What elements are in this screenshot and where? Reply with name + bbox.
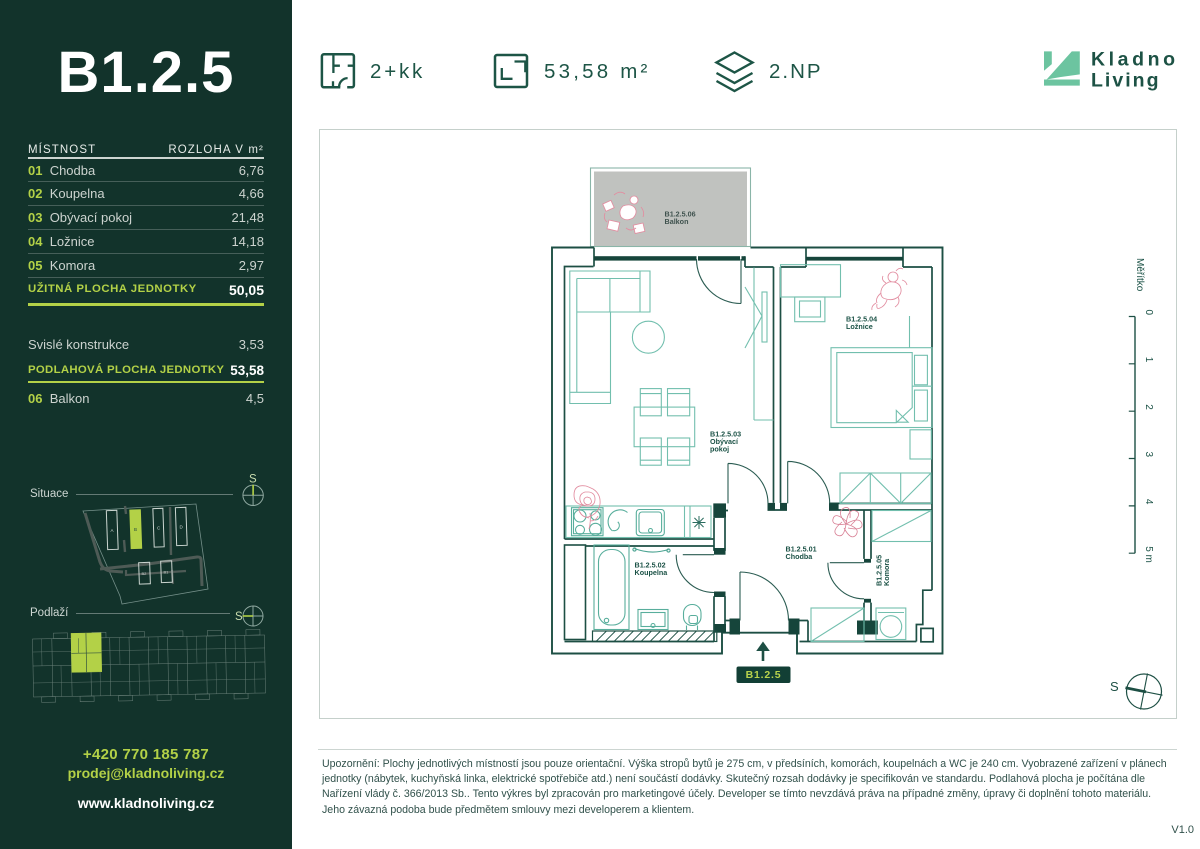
svg-text:5 m: 5 m [1143, 546, 1154, 563]
svg-text:Ložnice: Ložnice [846, 322, 873, 331]
svg-text:4: 4 [1143, 499, 1154, 505]
svg-text:Měřítko: Měřítko [1134, 258, 1145, 292]
svg-text:1: 1 [1143, 357, 1154, 363]
svg-text:2: 2 [1143, 404, 1154, 410]
svg-text:S: S [1110, 679, 1119, 694]
svg-text:Balkon: Balkon [665, 217, 689, 226]
svg-text:Koupelna: Koupelna [635, 568, 669, 577]
svg-text:0: 0 [1143, 310, 1154, 316]
svg-text:3: 3 [1143, 452, 1154, 458]
svg-text:Chodba: Chodba [786, 552, 814, 561]
svg-text:B1.2.5: B1.2.5 [746, 669, 782, 681]
svg-text:pokoj: pokoj [710, 444, 729, 453]
svg-text:Komora: Komora [882, 558, 891, 586]
